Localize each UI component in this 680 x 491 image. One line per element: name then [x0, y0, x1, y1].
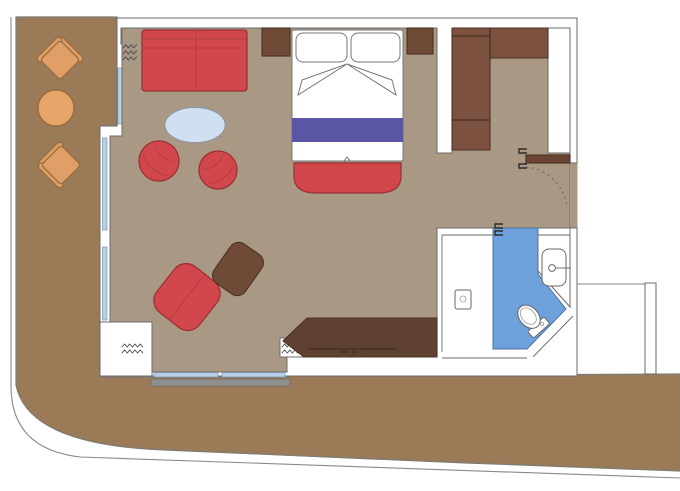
neighbor-wall-stub: [577, 283, 656, 374]
balcony-railing-bar: [151, 379, 290, 386]
sofa: [142, 30, 247, 91]
entrance-door-leaf: [526, 155, 570, 163]
bottom-window-right: [222, 373, 285, 378]
desk-console: [283, 318, 437, 357]
wall-niche-bottom-left: [100, 322, 152, 376]
pillow-right: [351, 33, 400, 62]
nightstand-right: [407, 28, 433, 54]
bed-runner-stripe: [292, 118, 403, 142]
left-window-upper: [103, 138, 108, 230]
doorway-floor: [570, 163, 578, 228]
oval-coffee-table: [165, 108, 225, 143]
foot-bench: [294, 163, 401, 193]
floorplan-screenshot: [0, 0, 680, 491]
pillow-left: [296, 33, 347, 62]
balcony-round-table: [38, 90, 74, 126]
shower-control: [455, 290, 471, 309]
floorplan-svg: [0, 0, 680, 491]
nightstand-left: [262, 28, 290, 56]
balcony-door-glass: [118, 68, 122, 124]
stub-wall: [645, 283, 656, 374]
wall-void: [548, 28, 570, 153]
left-window-lower: [103, 247, 108, 320]
bottom-window-left: [154, 373, 218, 378]
double-bed: [292, 30, 403, 161]
